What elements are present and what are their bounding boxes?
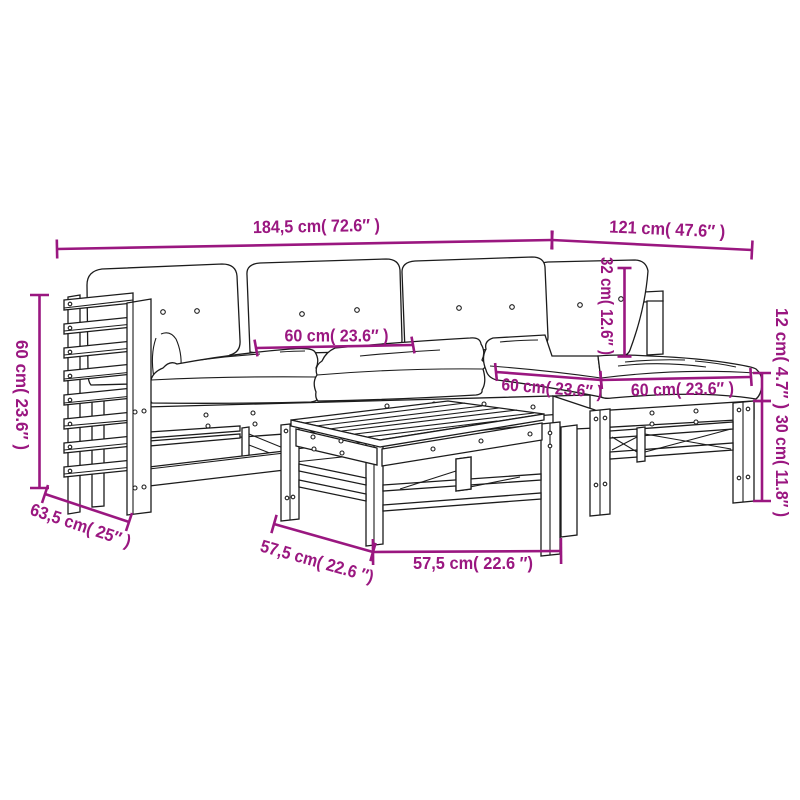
svg-text:60 cm( 23.6″ ): 60 cm( 23.6″ ) [12, 340, 32, 450]
svg-text:60 cm( 23.6″ ): 60 cm( 23.6″ ) [631, 378, 734, 400]
svg-text:60 cm( 23.6″ ): 60 cm( 23.6″ ) [285, 326, 389, 346]
svg-text:57,5 cm( 22.6 ″): 57,5 cm( 22.6 ″) [413, 553, 533, 573]
svg-text:32 cm( 12.6″ ): 32 cm( 12.6″ ) [597, 257, 617, 355]
svg-text:30 cm( 11.8″ ): 30 cm( 11.8″ ) [772, 415, 792, 517]
svg-text:12 cm( 4.7″ ): 12 cm( 4.7″ ) [772, 308, 792, 409]
svg-text:184,5 cm( 72.6″ ): 184,5 cm( 72.6″ ) [253, 215, 380, 237]
